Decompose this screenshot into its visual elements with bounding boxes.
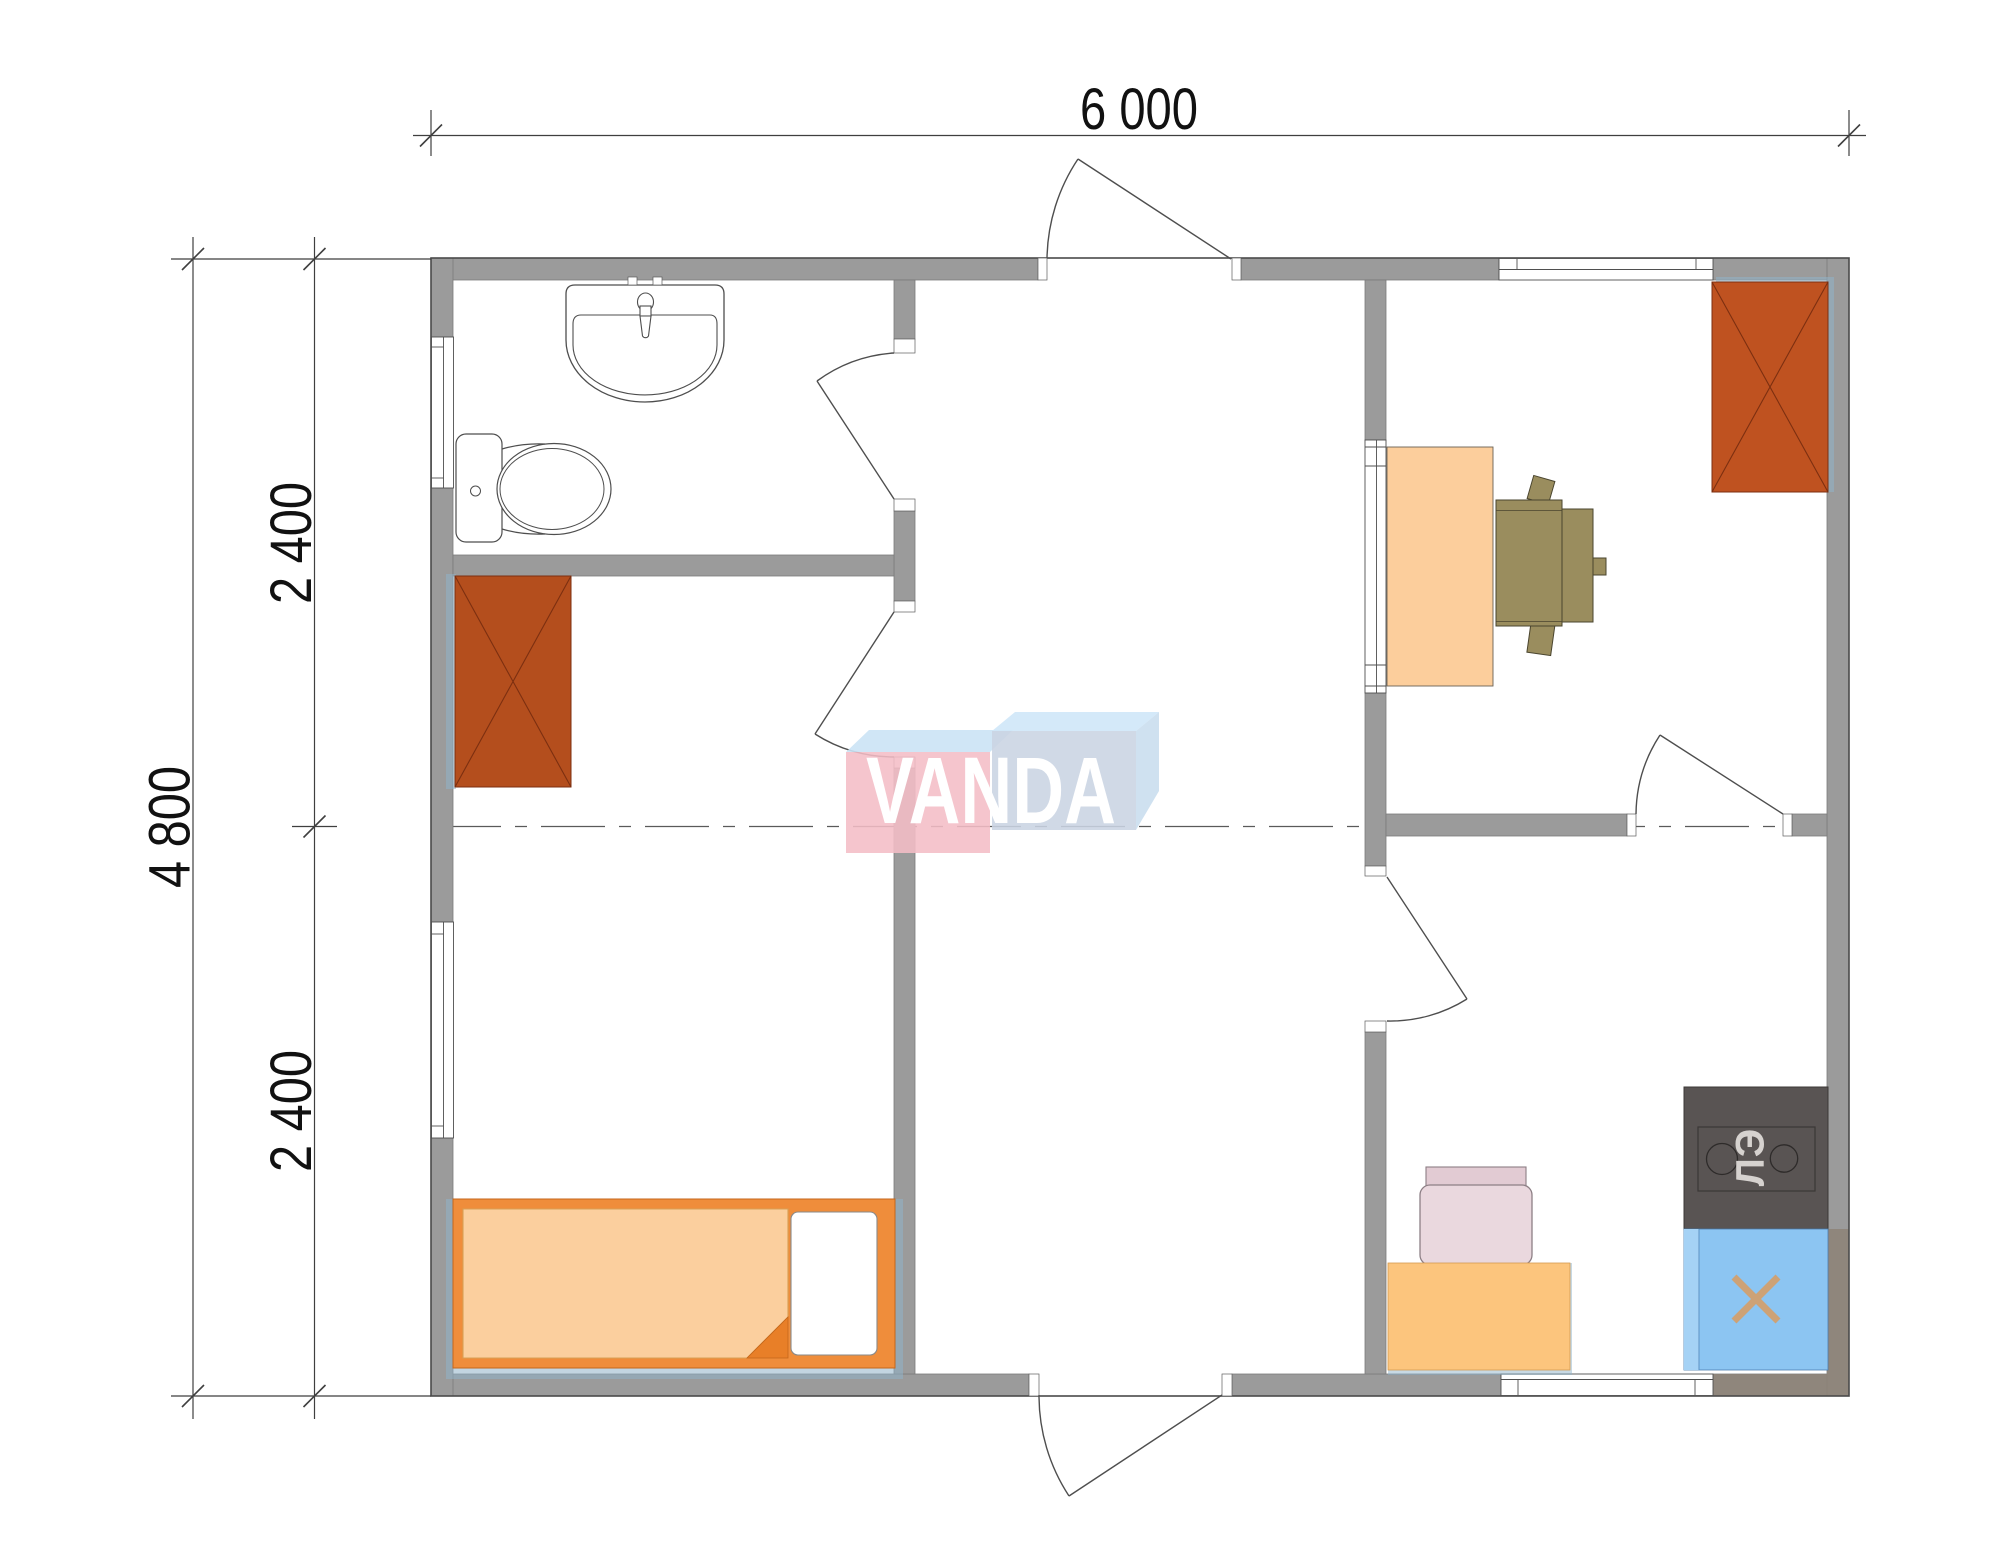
svg-text:2 400: 2 400 — [259, 1050, 324, 1172]
svg-text:2 400: 2 400 — [259, 482, 324, 604]
svg-text:VANDA: VANDA — [866, 738, 1116, 844]
svg-text:4 800: 4 800 — [138, 766, 203, 888]
svg-text:ЛЭ: ЛЭ — [1729, 1128, 1773, 1187]
svg-text:6 000: 6 000 — [1080, 77, 1198, 142]
